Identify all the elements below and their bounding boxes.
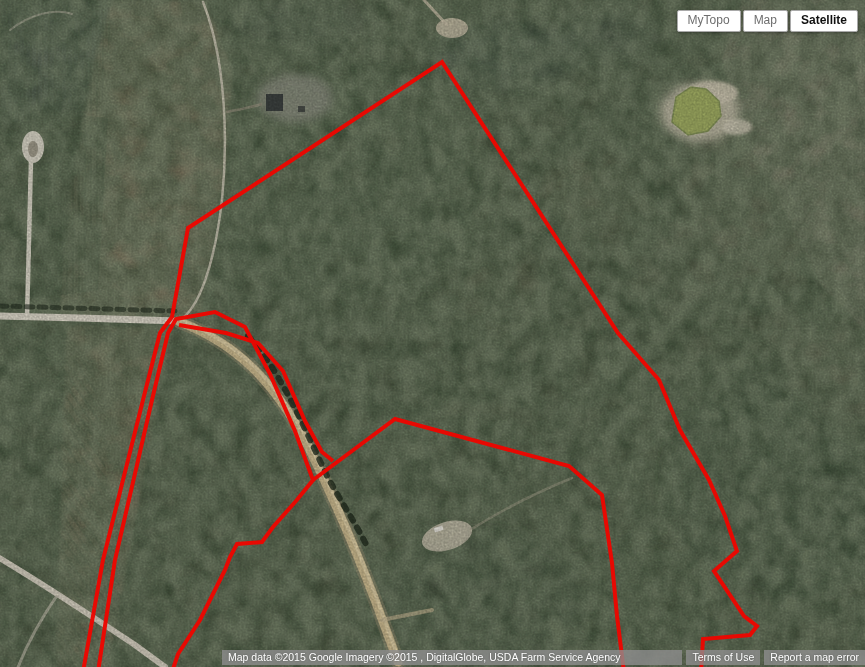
map-data-attribution: Map data ©2015 Google Imagery ©2015 , Di… [222, 650, 682, 665]
attribution-bar: Map data ©2015 Google Imagery ©2015 , Di… [222, 650, 865, 665]
report-map-error-link[interactable]: Report a map error [764, 650, 865, 665]
terms-of-use-link[interactable]: Terms of Use [686, 650, 760, 665]
map-type-button-satellite[interactable]: Satellite [790, 10, 858, 32]
map-type-button-map[interactable]: Map [743, 10, 788, 32]
satellite-imagery [0, 0, 865, 667]
map-type-button-mytopo[interactable]: MyTopo [677, 10, 741, 32]
map-canvas[interactable]: MyTopo Map Satellite Map data ©2015 Goog… [0, 0, 865, 667]
terrain-grain [0, 0, 865, 667]
map-type-selector: MyTopo Map Satellite [677, 10, 858, 32]
